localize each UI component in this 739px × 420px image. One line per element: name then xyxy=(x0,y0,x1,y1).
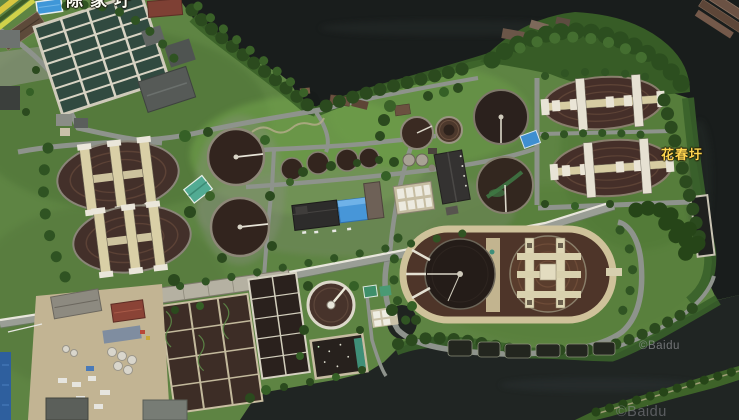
clarifier-medium-2 xyxy=(436,117,462,143)
giant-clarifier-pair xyxy=(403,229,622,320)
clarifier-west-1 xyxy=(208,129,264,185)
blue-wall xyxy=(0,352,11,420)
small-hut xyxy=(394,104,410,116)
swimming-pool xyxy=(36,0,63,15)
clarifier-center-2 xyxy=(477,157,533,213)
filter-gallery xyxy=(393,181,435,214)
satellite-imagery[interactable] xyxy=(0,0,739,420)
clarifier-medium-1 xyxy=(401,117,433,149)
sludge-thickener xyxy=(308,282,354,328)
map-viewport[interactable]: 陈家圩 花春圩 ©Baidu ©Baidu xyxy=(0,0,739,420)
clarifier-west-2 xyxy=(211,198,269,256)
